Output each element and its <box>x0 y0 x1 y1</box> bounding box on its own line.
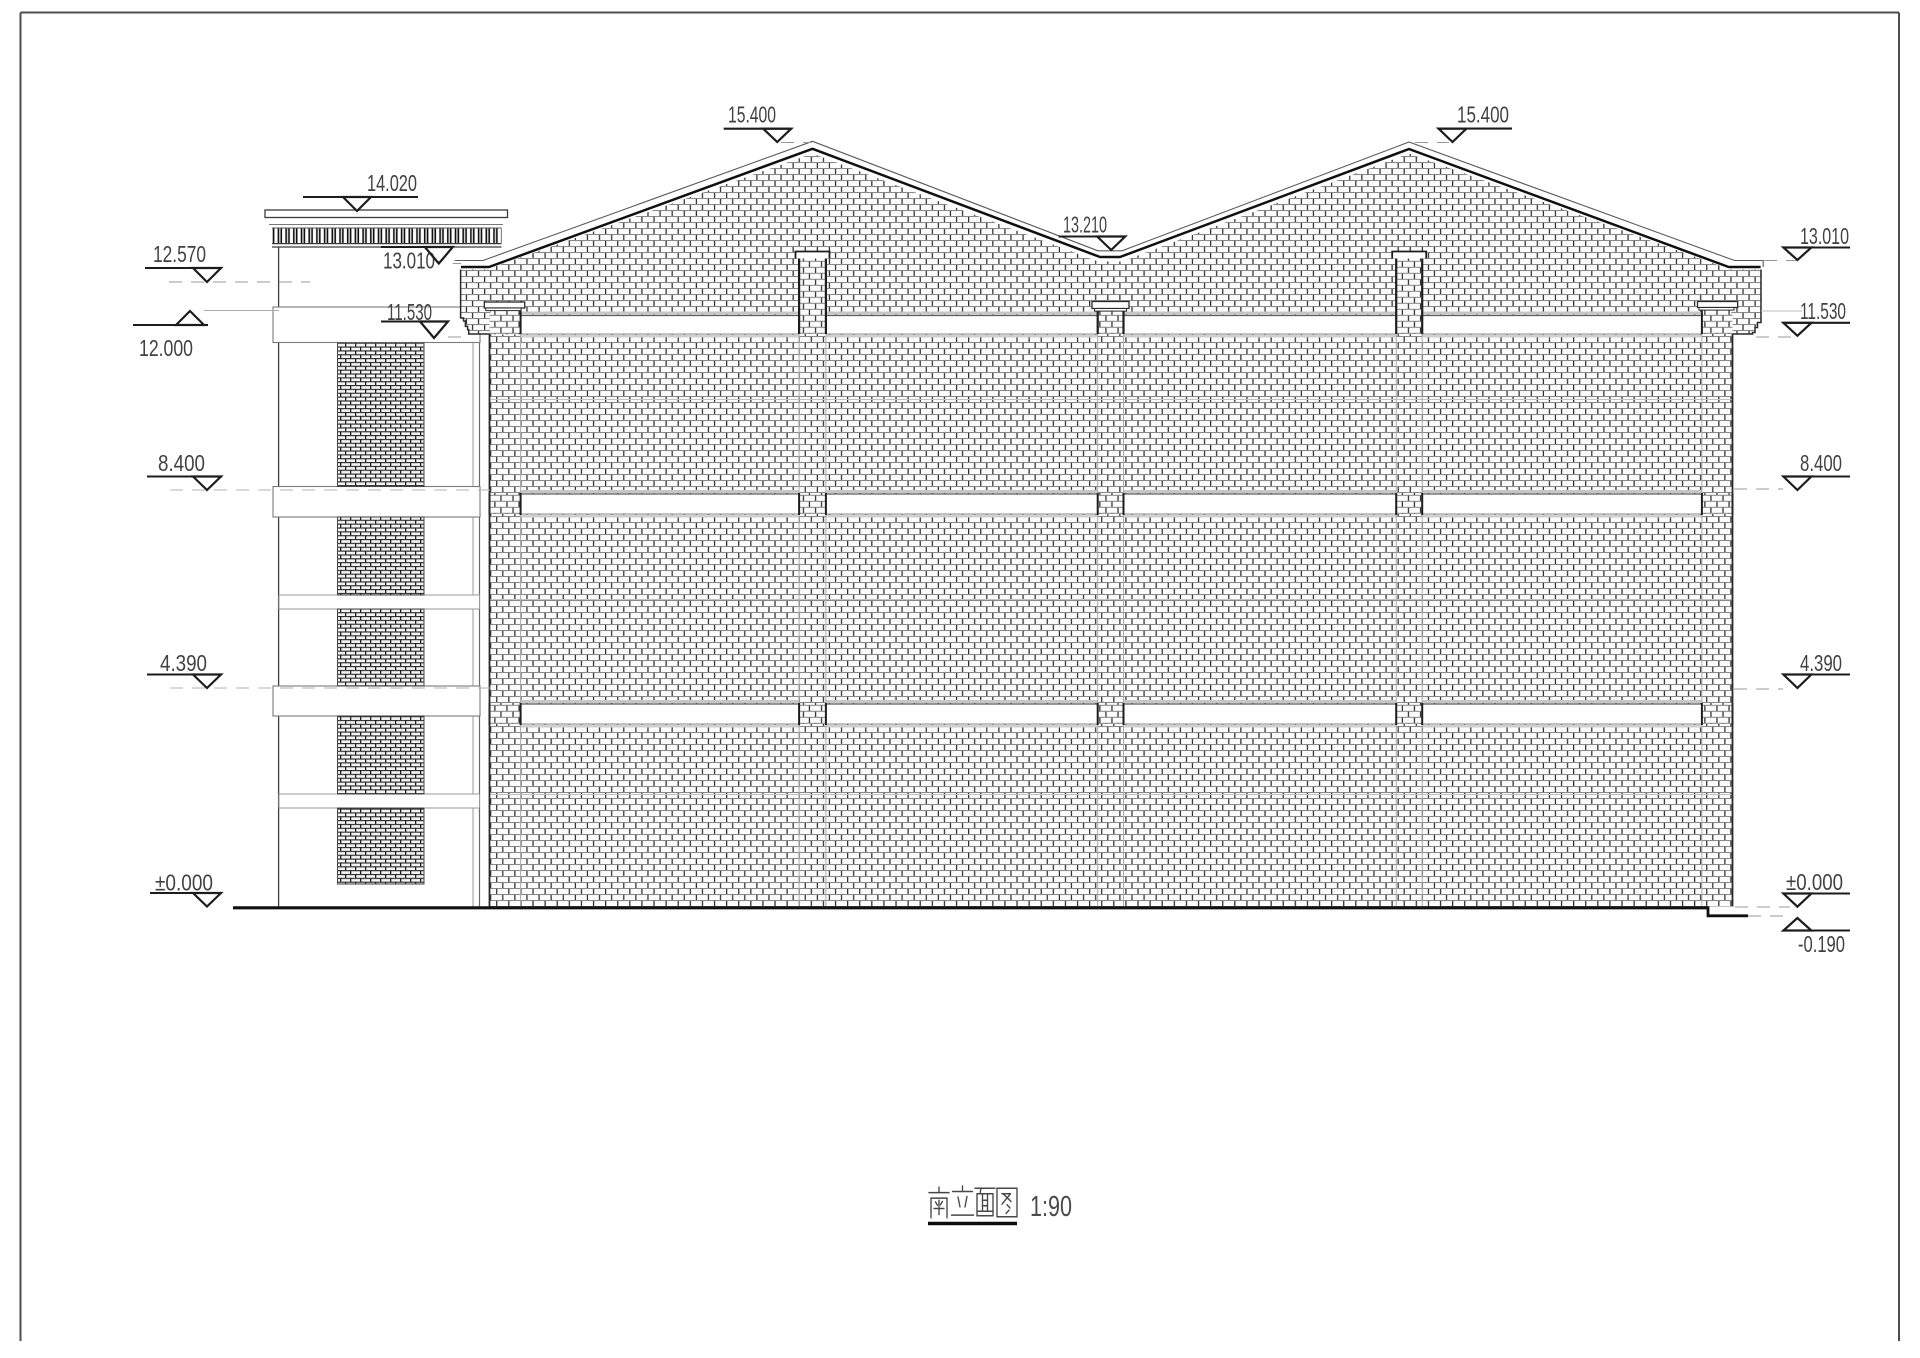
svg-text:±0.000: ±0.000 <box>155 870 213 896</box>
svg-text:±0.000: ±0.000 <box>1786 869 1843 895</box>
svg-text:14.020: 14.020 <box>367 170 417 196</box>
svg-text:4.390: 4.390 <box>1800 650 1842 676</box>
svg-text:8.400: 8.400 <box>158 450 205 476</box>
svg-text:15.400: 15.400 <box>728 102 776 128</box>
svg-text:12.570: 12.570 <box>153 241 206 267</box>
svg-text:4.390: 4.390 <box>160 650 207 676</box>
svg-text:12.000: 12.000 <box>139 335 193 361</box>
svg-text:1:90: 1:90 <box>1030 1191 1072 1223</box>
svg-text:15.400: 15.400 <box>1457 102 1509 128</box>
svg-text:11.530: 11.530 <box>1800 298 1846 324</box>
svg-text:13.010: 13.010 <box>1800 223 1849 249</box>
svg-text:13.210: 13.210 <box>1063 212 1107 238</box>
svg-text:8.400: 8.400 <box>1800 450 1842 476</box>
svg-text:-0.190: -0.190 <box>1798 931 1845 957</box>
